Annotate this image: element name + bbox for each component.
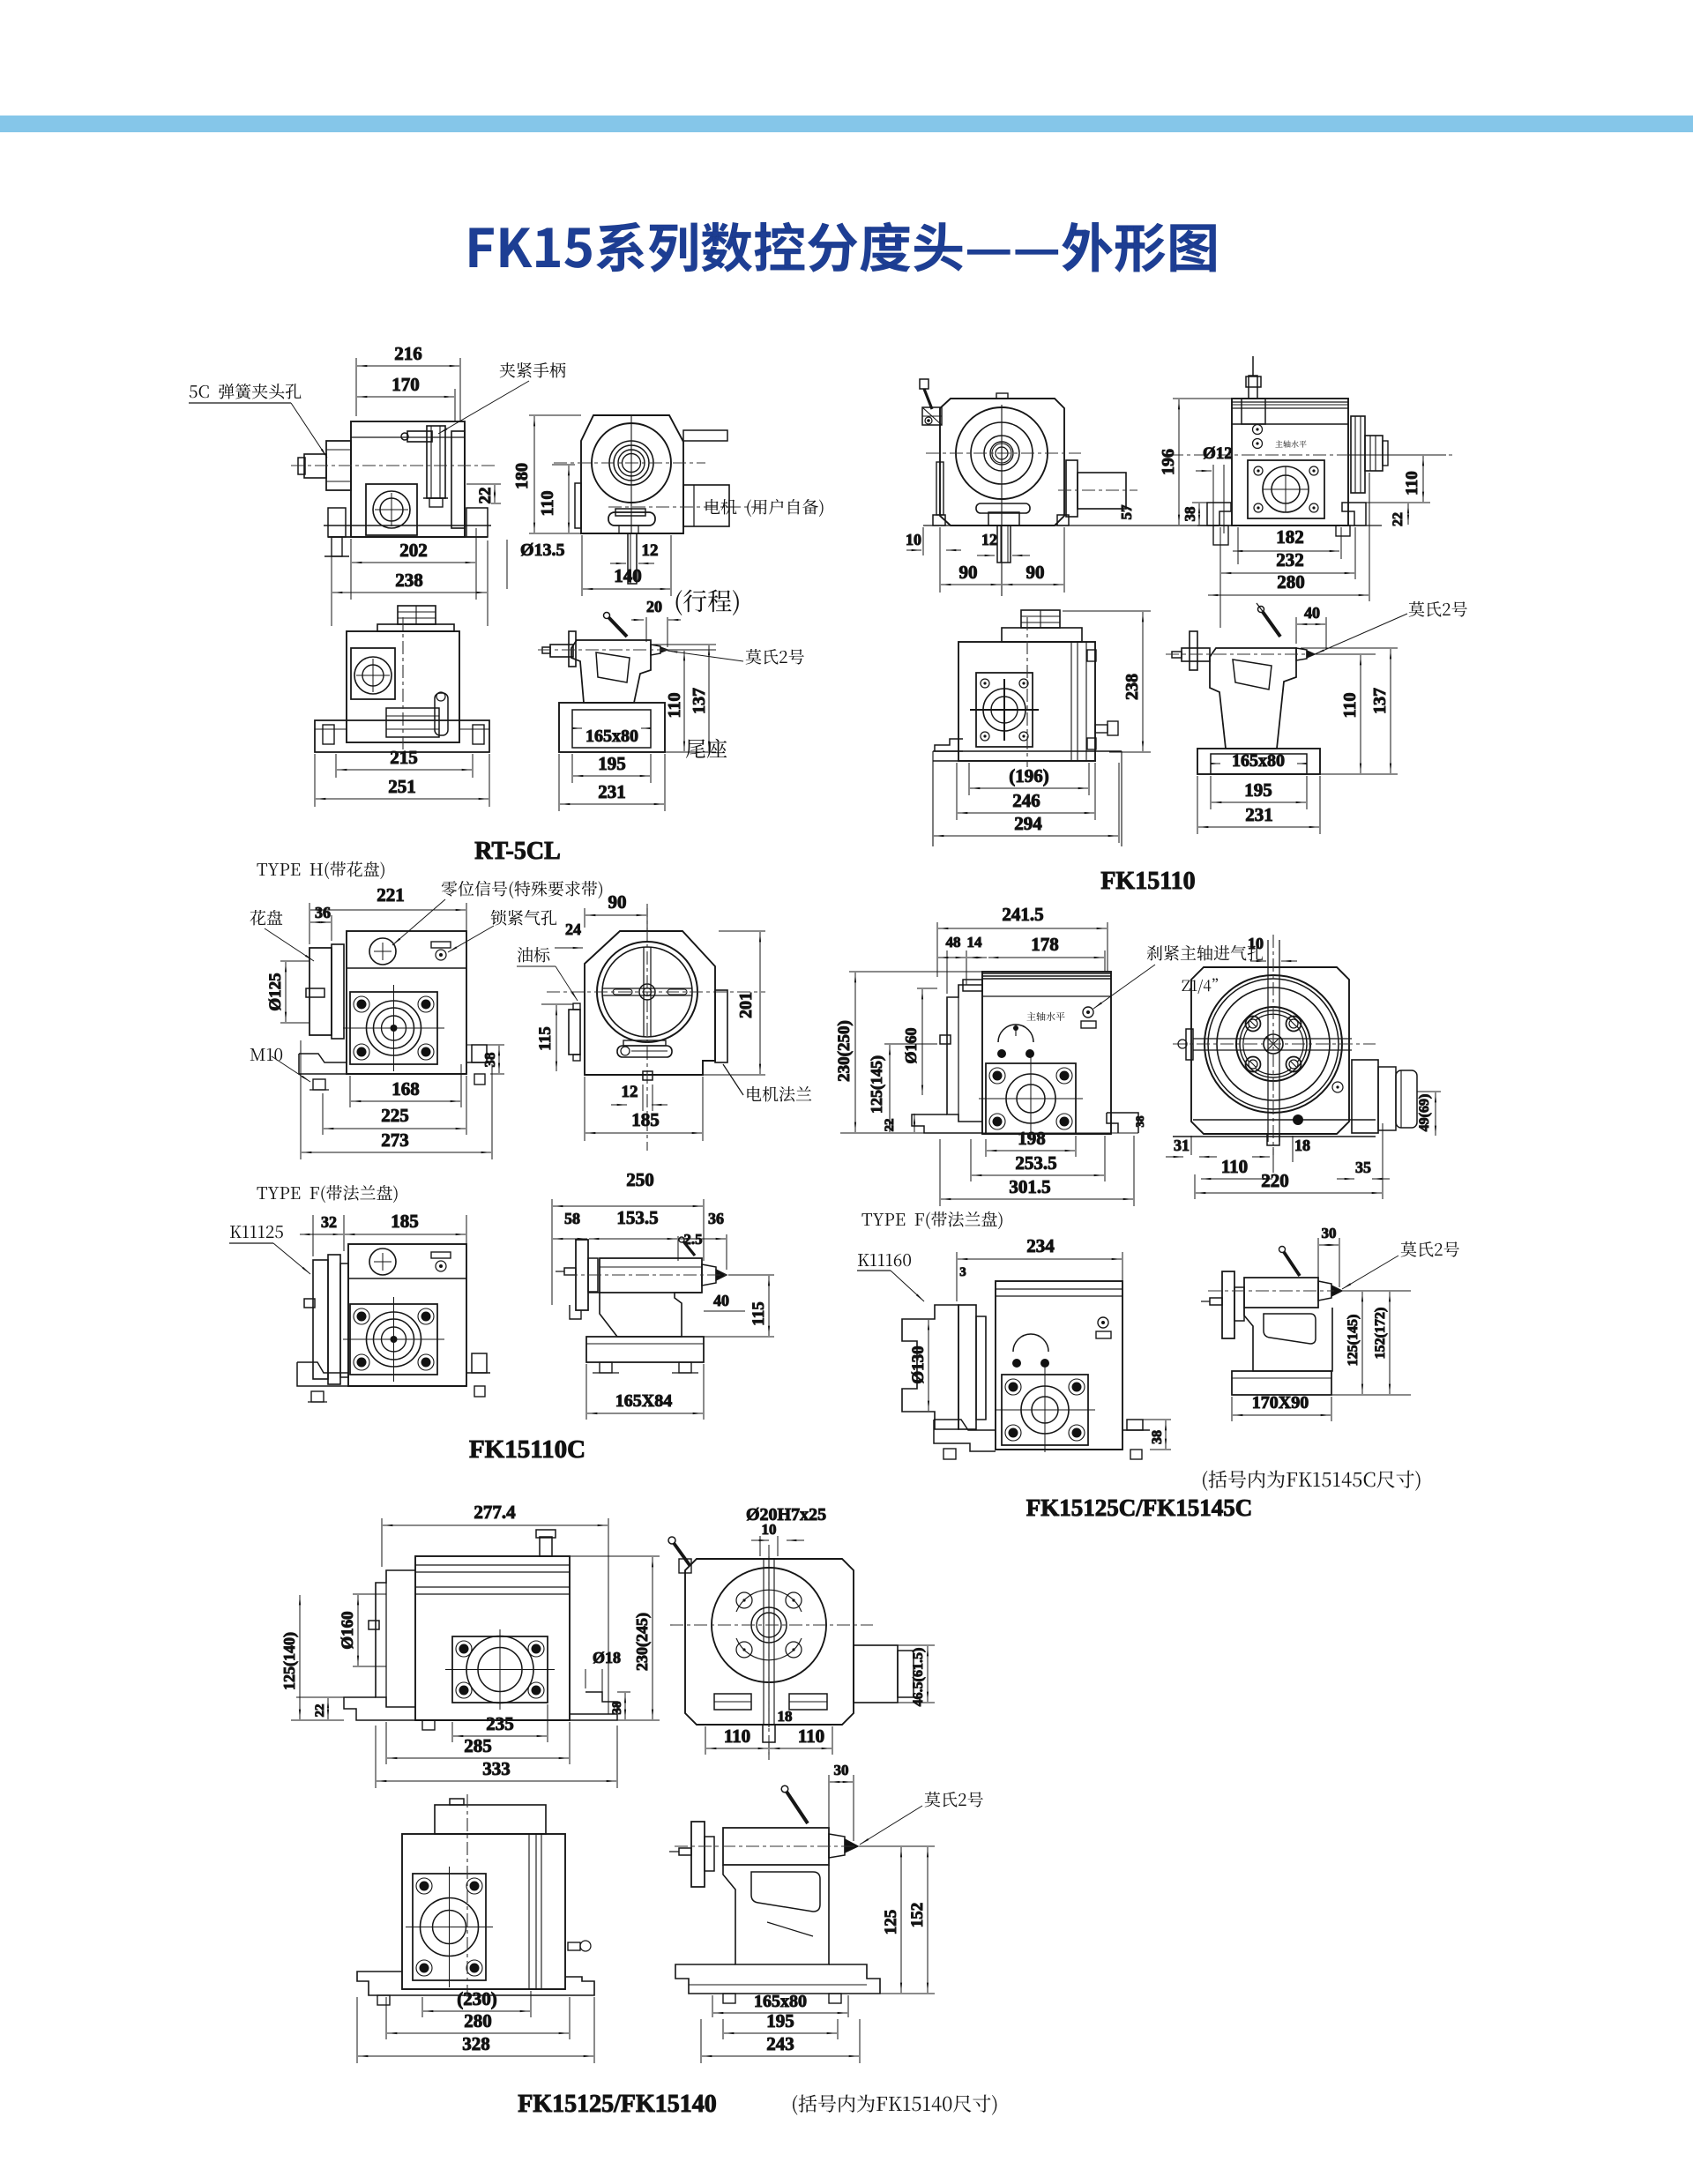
svg-text:333: 333: [482, 1758, 511, 1779]
svg-text:RT-5CL: RT-5CL: [474, 838, 561, 865]
svg-text:196: 196: [1159, 449, 1178, 475]
svg-text:115: 115: [536, 1026, 555, 1050]
svg-text:125(145): 125(145): [1346, 1315, 1361, 1367]
svg-text:328: 328: [462, 2033, 490, 2054]
svg-text:231: 231: [1245, 804, 1273, 825]
svg-text:185: 185: [631, 1109, 660, 1130]
svg-text:202: 202: [399, 540, 428, 561]
svg-text:Ø13.5: Ø13.5: [520, 540, 565, 560]
svg-text:36: 36: [315, 904, 331, 921]
svg-text:234: 234: [1026, 1235, 1055, 1256]
svg-text:18: 18: [1294, 1137, 1310, 1154]
svg-text:FK15110: FK15110: [1100, 868, 1195, 895]
svg-text:38: 38: [1133, 1115, 1146, 1128]
svg-text:Ø125: Ø125: [266, 973, 285, 1010]
svg-text:22: 22: [313, 1704, 327, 1718]
svg-text:168: 168: [392, 1078, 420, 1099]
svg-text:243: 243: [766, 2033, 794, 2054]
svg-text:Ø130: Ø130: [909, 1345, 928, 1383]
svg-text:246: 246: [1012, 790, 1040, 811]
svg-text:165x80: 165x80: [585, 727, 638, 746]
svg-text:48: 48: [946, 934, 961, 950]
svg-text:49(69): 49(69): [1417, 1094, 1432, 1132]
svg-text:110: 110: [798, 1726, 824, 1747]
svg-text:Ø160: Ø160: [902, 1027, 920, 1063]
svg-text:221: 221: [377, 884, 405, 906]
svg-text:140: 140: [614, 565, 642, 586]
svg-text:110: 110: [1340, 693, 1360, 719]
svg-text:216: 216: [394, 343, 422, 364]
svg-text:182: 182: [1276, 526, 1304, 548]
svg-text:280: 280: [464, 2010, 492, 2031]
svg-text:38: 38: [610, 1702, 624, 1715]
svg-text:198: 198: [1018, 1128, 1046, 1149]
svg-text:12: 12: [981, 531, 997, 548]
svg-text:20: 20: [646, 598, 662, 615]
svg-text:46.5(61.5): 46.5(61.5): [911, 1648, 926, 1707]
svg-text:110: 110: [724, 1726, 750, 1747]
svg-text:10: 10: [762, 1521, 777, 1538]
svg-text:165x80: 165x80: [754, 1992, 807, 2011]
svg-text:38: 38: [1182, 507, 1198, 522]
svg-text:36: 36: [708, 1210, 724, 1227]
svg-text:152(172): 152(172): [1373, 1308, 1388, 1360]
svg-text:Ø18: Ø18: [593, 1649, 621, 1666]
svg-text:180: 180: [512, 463, 532, 489]
svg-text:115: 115: [750, 1301, 768, 1325]
svg-text:12: 12: [622, 1083, 638, 1101]
svg-text:185: 185: [391, 1211, 419, 1232]
svg-text:125(140): 125(140): [280, 1632, 299, 1690]
svg-text:90: 90: [608, 891, 627, 913]
svg-text:110: 110: [1221, 1156, 1248, 1177]
svg-text:165X84: 165X84: [615, 1391, 672, 1411]
svg-text:FK15110C: FK15110C: [469, 1435, 585, 1464]
svg-text:232: 232: [1276, 549, 1304, 570]
svg-text:(196): (196): [1009, 765, 1049, 786]
svg-text:Ø20H7x25: Ø20H7x25: [746, 1505, 826, 1524]
svg-text:35: 35: [1355, 1159, 1371, 1176]
svg-text:195: 195: [766, 2010, 794, 2031]
svg-text:3: 3: [959, 1265, 966, 1279]
svg-text:230(245): 230(245): [633, 1613, 652, 1671]
svg-text:285: 285: [464, 1735, 492, 1756]
svg-text:195: 195: [1244, 779, 1272, 801]
svg-text:Ø12: Ø12: [1203, 444, 1233, 463]
svg-text:58: 58: [564, 1210, 580, 1227]
svg-text:24: 24: [565, 921, 581, 938]
svg-text:152: 152: [908, 1903, 927, 1928]
svg-text:110: 110: [665, 693, 684, 719]
svg-text:125: 125: [882, 1910, 900, 1935]
svg-text:153.5: 153.5: [616, 1207, 658, 1228]
svg-text:273: 273: [381, 1129, 409, 1151]
svg-text:280: 280: [1277, 571, 1305, 593]
svg-text:250: 250: [626, 1169, 654, 1190]
svg-text:FK15125/FK15140: FK15125/FK15140: [518, 2091, 717, 2118]
svg-text:30: 30: [834, 1762, 849, 1778]
svg-text:220: 220: [1261, 1170, 1289, 1191]
svg-text:38: 38: [481, 1053, 498, 1068]
svg-text:22: 22: [1391, 512, 1406, 526]
svg-text:165x80: 165x80: [1232, 751, 1285, 771]
svg-text:238: 238: [395, 570, 423, 591]
svg-text:225: 225: [381, 1105, 409, 1126]
svg-text:253.5: 253.5: [1015, 1152, 1056, 1174]
svg-text:170: 170: [392, 374, 420, 395]
svg-text:294: 294: [1014, 813, 1042, 834]
svg-text:18: 18: [778, 1708, 793, 1725]
svg-text:241.5: 241.5: [1002, 904, 1043, 925]
svg-text:215: 215: [390, 747, 418, 768]
svg-text:10: 10: [906, 531, 921, 548]
svg-text:40: 40: [1304, 604, 1320, 622]
svg-text:235: 235: [486, 1713, 514, 1734]
svg-text:30: 30: [1322, 1225, 1337, 1241]
svg-text:110: 110: [1403, 471, 1421, 495]
svg-text:277.4: 277.4: [474, 1502, 516, 1523]
svg-text:137: 137: [1370, 688, 1390, 714]
svg-text:238: 238: [1122, 674, 1142, 700]
svg-text:201: 201: [736, 992, 756, 1018]
svg-text:110: 110: [538, 491, 557, 517]
svg-text:12: 12: [642, 541, 659, 560]
svg-text:22: 22: [476, 488, 495, 504]
svg-text:231: 231: [598, 781, 626, 802]
svg-text:(230): (230): [457, 1988, 497, 2009]
svg-text:90: 90: [1026, 562, 1045, 583]
svg-text:125(145): 125(145): [868, 1055, 886, 1114]
svg-text:251: 251: [388, 776, 416, 797]
svg-text:FK15125C/FK15145C: FK15125C/FK15145C: [1026, 1495, 1253, 1521]
svg-text:32: 32: [321, 1213, 337, 1231]
svg-text:57: 57: [1118, 504, 1135, 520]
svg-text:170X90: 170X90: [1252, 1393, 1309, 1413]
svg-text:38: 38: [1150, 1430, 1165, 1444]
svg-text:40: 40: [713, 1292, 729, 1309]
svg-text:195: 195: [598, 753, 626, 774]
svg-text:Ø160: Ø160: [339, 1611, 357, 1649]
svg-text:31: 31: [1174, 1137, 1190, 1154]
svg-text:230(250): 230(250): [835, 1020, 854, 1082]
svg-text:10: 10: [1248, 935, 1264, 952]
svg-text:137: 137: [690, 688, 709, 714]
svg-text:14: 14: [967, 934, 983, 950]
svg-text:22: 22: [883, 1119, 897, 1132]
svg-text:178: 178: [1031, 934, 1059, 955]
svg-text:301.5: 301.5: [1009, 1176, 1050, 1197]
svg-text:90: 90: [959, 562, 978, 583]
